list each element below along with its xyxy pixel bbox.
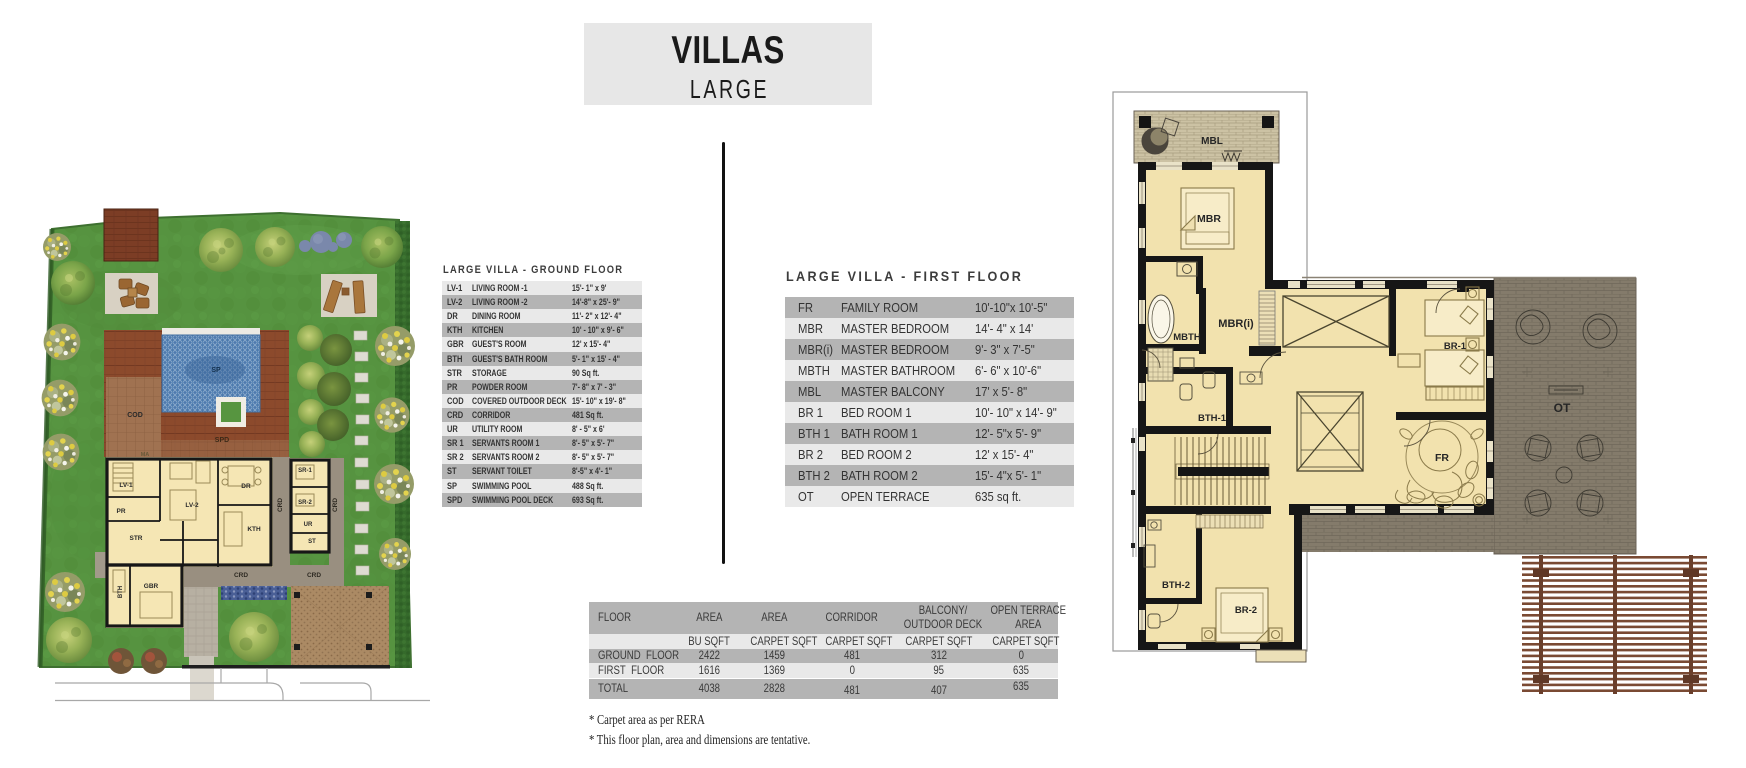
svg-text:BTH-2: BTH-2: [1162, 580, 1190, 591]
svg-text:OT: OT: [1554, 401, 1571, 415]
svg-text:FR: FR: [1435, 452, 1449, 464]
svg-text:MBR(i): MBR(i): [1218, 318, 1254, 330]
svg-text:BTH-1: BTH-1: [1198, 413, 1227, 424]
svg-text:MBTH: MBTH: [1173, 332, 1201, 343]
svg-text:BR-2: BR-2: [1235, 605, 1257, 616]
svg-text:MBL: MBL: [1201, 136, 1223, 147]
svg-text:MBR: MBR: [1197, 213, 1221, 225]
svg-text:BR-1: BR-1: [1444, 341, 1467, 352]
